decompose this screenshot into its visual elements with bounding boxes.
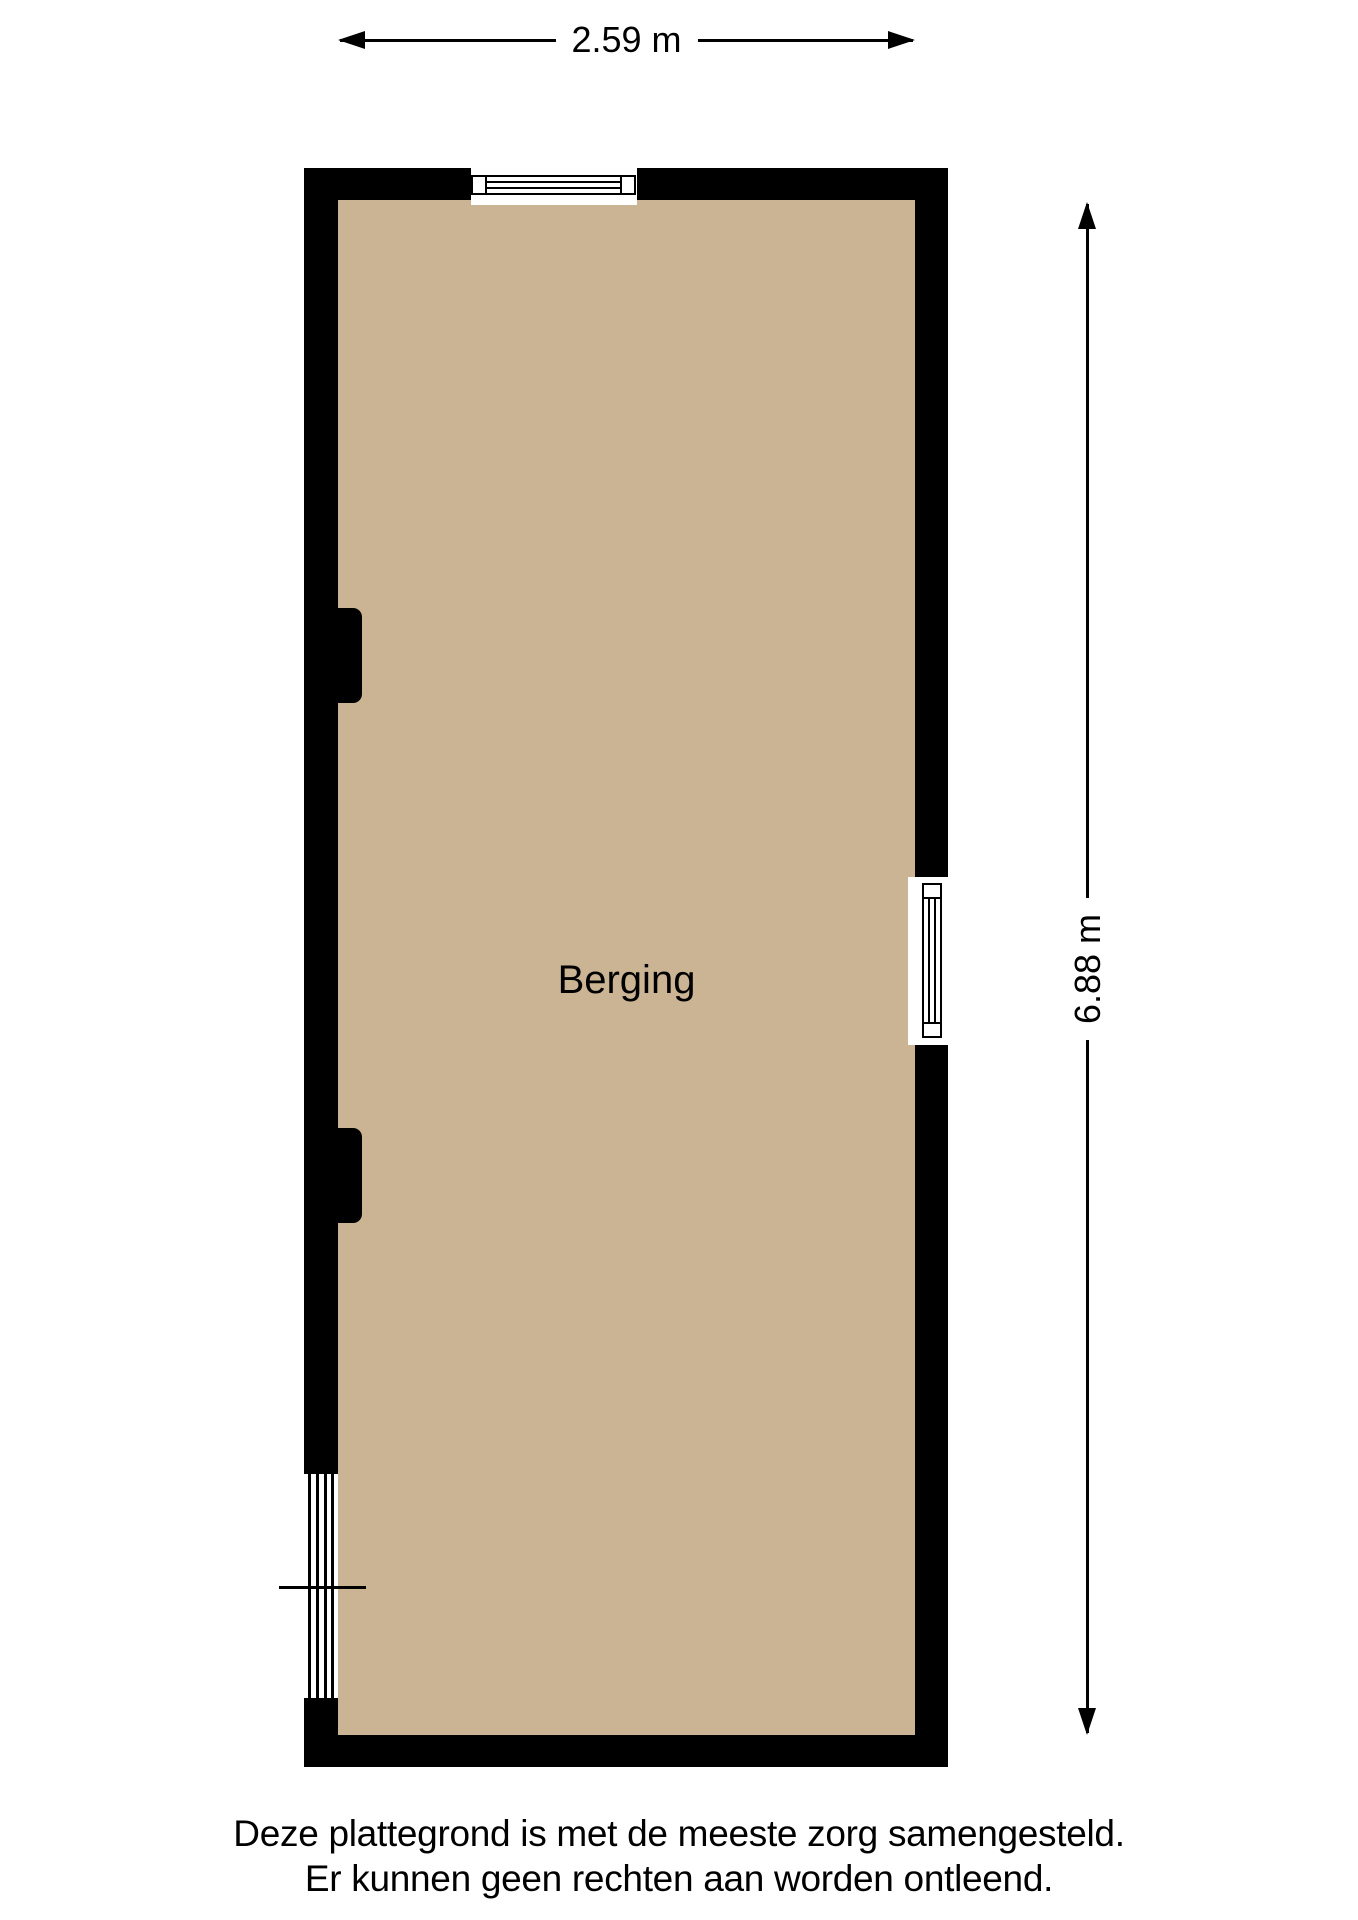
window-top [471,168,637,205]
door-marker [279,1586,366,1589]
window-end-cap [620,177,634,193]
window-end-cap [924,885,940,899]
window-end-cap [473,177,487,193]
window-glass-line [928,899,930,1022]
wall-stub-lower [305,1128,362,1223]
arrow-right-icon [888,31,915,49]
floorplan-canvas: 2.59 m Berging 6 [0,0,1358,1920]
disclaimer-line2: Er kunnen geen rechten aan worden ontlee… [0,1856,1358,1901]
window-frame [922,883,942,1038]
room-label: Berging [338,956,915,1004]
window-frame [471,175,636,195]
height-dimension-label: 6.88 m [1067,897,1109,1039]
window-glass-line [487,181,620,183]
arrow-down-icon [1078,1708,1096,1735]
window-glass-line [934,899,936,1022]
height-dimension: 6.88 m [1064,202,1112,1735]
width-dimension: 2.59 m [338,16,915,64]
arrow-left-icon [338,31,365,49]
disclaimer: Deze plattegrond is met de meeste zorg s… [0,1811,1358,1901]
window-end-cap [924,1022,940,1036]
disclaimer-line1: Deze plattegrond is met de meeste zorg s… [0,1811,1358,1856]
window-glass-line [487,187,620,189]
wall-stub-upper [305,608,362,703]
arrow-up-icon [1078,202,1096,229]
width-dimension-label: 2.59 m [555,19,697,61]
